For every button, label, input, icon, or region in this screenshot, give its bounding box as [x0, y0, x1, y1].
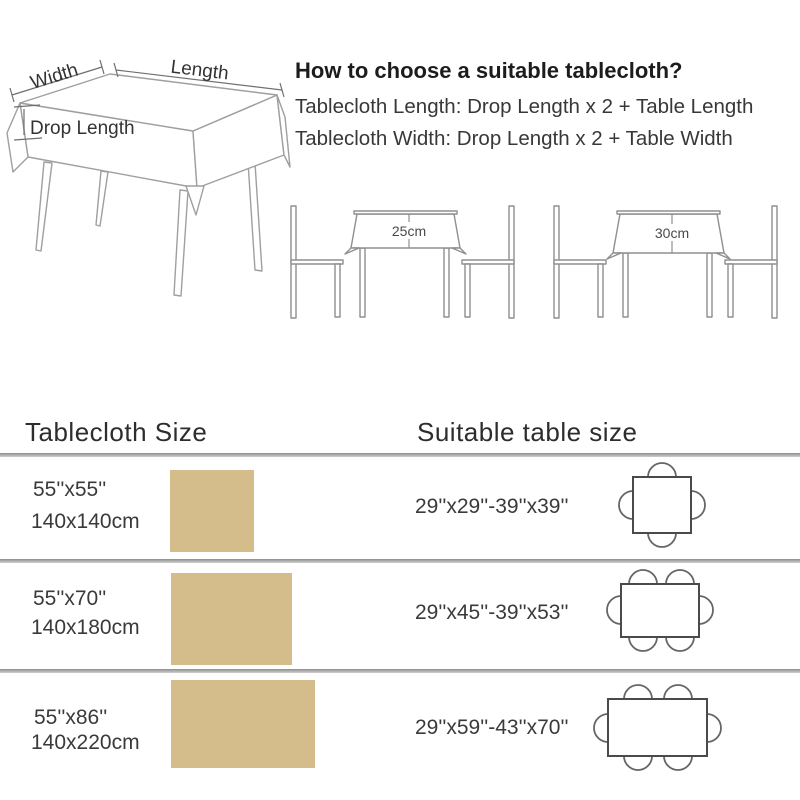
drop-example-30cm-illustration: 30cm [548, 196, 783, 322]
header-block: How to choose a suitable tablecloth? Tab… [295, 58, 800, 155]
chair-leg [728, 264, 733, 317]
table-top-view [608, 699, 707, 756]
chair-bottom [664, 756, 692, 770]
table-leg [96, 171, 108, 226]
chair-left [594, 714, 608, 742]
chair-left [607, 596, 621, 624]
chair-leg [465, 264, 470, 317]
tablecloth-corner-drape [345, 248, 359, 254]
formula-width: Tablecloth Width: Drop Length x 2 + Tabl… [295, 123, 800, 155]
drop-length-label: Drop Length [30, 118, 135, 139]
tablecloth-size-inches: 55''x55'' [33, 478, 106, 502]
drop-example-25cm-illustration: 25cm [285, 196, 520, 322]
tablecloth-swatch-long-rectangle [171, 680, 315, 768]
chair-right [691, 491, 705, 519]
chair-top [666, 570, 694, 584]
tabletop-edge [617, 211, 720, 214]
tablecloth-swatch-square [170, 470, 254, 552]
chair-bottom [648, 533, 676, 547]
tablecloth-corner-drape [716, 253, 730, 259]
length-label: Length [170, 57, 230, 85]
chair-bottom [629, 637, 657, 651]
tablecloth-corner-drape [452, 248, 466, 254]
chair-leg [335, 264, 340, 317]
tablecloth-size-cm: 140x220cm [31, 731, 140, 755]
page-title: How to choose a suitable tablecloth? [295, 58, 800, 84]
tablecloth-size-inches: 55''x70'' [33, 587, 106, 611]
tabletop-edge [354, 211, 457, 214]
drop-measurement-label: 25cm [392, 223, 426, 239]
chair-bottom [624, 756, 652, 770]
chair-top [664, 685, 692, 699]
row-divider [0, 669, 800, 673]
table-leg [174, 190, 188, 296]
chair-left [619, 491, 633, 519]
suitable-table-size-range: 29''x29''-39''x39'' [415, 495, 569, 519]
table-leg [444, 248, 449, 317]
column-header-suitable-table-size: Suitable table size [417, 417, 638, 448]
chair-right [707, 714, 721, 742]
suitable-table-size-range: 29''x59''-43''x70'' [415, 716, 569, 740]
table-top-view [633, 477, 691, 533]
long-rectangle-table-6-chairs-icon [578, 684, 726, 776]
formula-length: Tablecloth Length: Drop Length x 2 + Tab… [295, 91, 800, 123]
chair-top [648, 463, 676, 477]
tablecloth-corner-drape [607, 253, 621, 259]
chair-top [629, 570, 657, 584]
chair-leg [598, 264, 603, 317]
square-table-4-chairs-icon [611, 457, 715, 553]
table-top-view [621, 584, 699, 637]
chair-bottom [666, 637, 694, 651]
table-leg [36, 162, 52, 251]
table-leg [707, 253, 712, 317]
table-leg [248, 162, 262, 271]
tablecloth-corner-drape [186, 186, 204, 215]
chair-top [624, 685, 652, 699]
tablecloth-infographic: Width Length Drop Length How to choose a… [0, 0, 800, 800]
tablecloth-size-inches: 55''x86'' [34, 706, 107, 730]
rectangle-table-6-chairs-icon [594, 567, 724, 653]
tablecloth-size-cm: 140x140cm [31, 510, 140, 534]
column-header-tablecloth-size: Tablecloth Size [25, 417, 207, 448]
suitable-table-size-range: 29''x45''-39''x53'' [415, 601, 569, 625]
table-leg [623, 253, 628, 317]
drop-measurement-label: 30cm [655, 225, 689, 241]
tablecloth-size-cm: 140x180cm [31, 616, 140, 640]
row-divider [0, 559, 800, 563]
table-leg [360, 248, 365, 317]
chair-right [699, 596, 713, 624]
tablecloth-swatch-rectangle [171, 573, 292, 665]
tablecloth-perspective-illustration: Width Length Drop Length [0, 45, 300, 303]
